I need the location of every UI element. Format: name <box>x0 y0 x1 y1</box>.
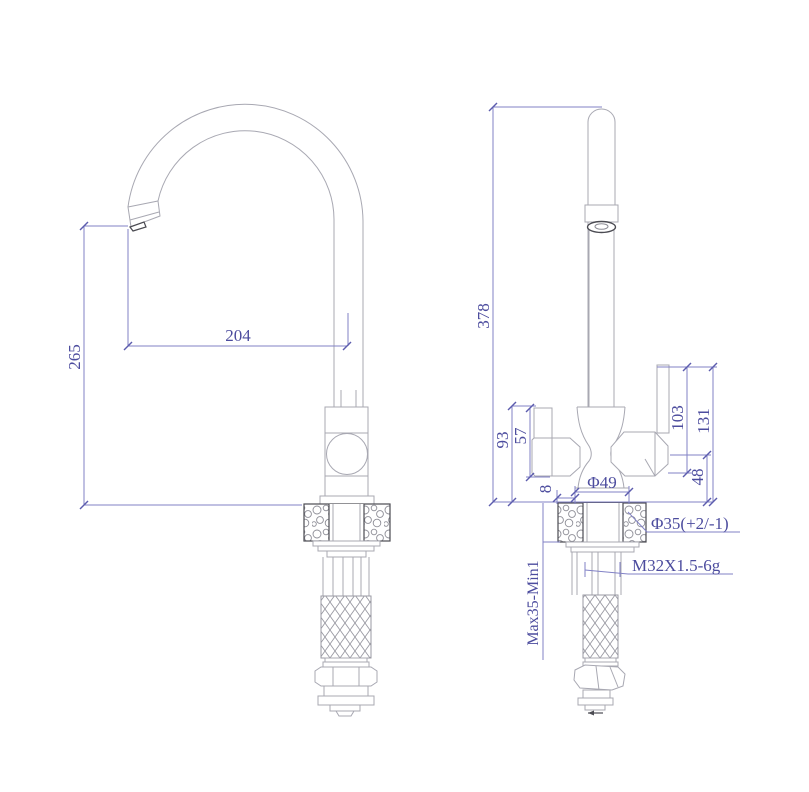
side-body <box>320 407 374 504</box>
supply-tubes <box>323 557 369 596</box>
dim-label-counter-thickness: Max35-Min1 <box>525 560 542 645</box>
left-handle-lever <box>534 408 552 438</box>
fitting-tip <box>585 705 605 710</box>
shank-flange-step <box>571 547 634 552</box>
dim-ticks <box>80 222 351 509</box>
braided-hose <box>583 595 618 658</box>
side-view-dimensions: 204 265 <box>65 222 351 509</box>
dim-label-lever-to-handle-bottom: 103 <box>668 405 687 431</box>
supply-tubes <box>572 552 621 595</box>
spout-tip <box>128 201 160 231</box>
spout-column-outline <box>588 109 615 407</box>
front-view: 378 93 57 103 131 48 8 Φ49 Φ35(+2/-1) M3… <box>474 103 740 716</box>
dim-label-outlet-height: 265 <box>65 344 84 370</box>
hose-ring <box>585 658 616 662</box>
fitting-cylinder <box>583 690 610 698</box>
spout-collar <box>585 205 618 222</box>
dim-label-body-height: 93 <box>493 432 512 449</box>
dim-label-mounting-hole: Φ35(+2/-1) <box>651 514 729 533</box>
front-undermount <box>566 542 639 716</box>
spout-outer-arc <box>128 104 363 221</box>
fitting-cylinder <box>324 686 368 696</box>
fitting-tip-arrow <box>588 711 594 716</box>
fitting-ring <box>578 698 613 705</box>
technical-drawing-canvas: 204 265 <box>0 0 809 792</box>
aerator-outlet <box>588 222 616 233</box>
dim-label-overall-height: 378 <box>474 303 493 329</box>
dim-label-base-diameter: Φ49 <box>587 473 616 492</box>
gooseneck-spout <box>128 104 363 407</box>
dim-ticks <box>489 103 717 506</box>
left-handle-base <box>532 438 580 476</box>
dim-label-handle-height: 57 <box>511 427 530 445</box>
counter-cross-section-front <box>558 503 646 542</box>
counter-cross-section <box>304 504 390 541</box>
right-handle-base <box>611 432 668 476</box>
dim-label-thread-spec: M32X1.5-6g <box>632 556 721 575</box>
faucet-drawing: 204 265 <box>0 0 809 792</box>
dim-label-lever-to-counter: 131 <box>694 408 713 434</box>
hex-nut <box>315 667 377 686</box>
side-undermount <box>313 541 380 716</box>
spout-column <box>585 109 618 407</box>
fitting-tip <box>330 705 360 711</box>
base-collar <box>320 496 374 504</box>
spout-inner-arc <box>158 131 334 221</box>
dim-label-base-offset: 8 <box>536 485 555 494</box>
fitting-tip-end <box>336 711 354 716</box>
shank-flange <box>566 542 639 547</box>
fitting-ring <box>318 696 374 705</box>
front-view-dimensions: 378 93 57 103 131 48 8 Φ49 Φ35(+2/-1) M3… <box>474 103 740 660</box>
hose-ring <box>323 662 369 667</box>
side-view: 204 265 <box>65 104 390 716</box>
shank-flange-step <box>318 546 374 551</box>
shank-neck <box>327 551 366 557</box>
shank-flange <box>313 541 380 546</box>
dim-label-spout-reach: 204 <box>225 326 251 345</box>
left-handle <box>532 408 580 476</box>
dim-label-handle-to-counter: 48 <box>688 469 707 486</box>
ball-joint <box>327 434 368 475</box>
right-handle <box>611 365 669 476</box>
hose-ring <box>325 658 367 662</box>
braided-hose <box>321 596 371 658</box>
